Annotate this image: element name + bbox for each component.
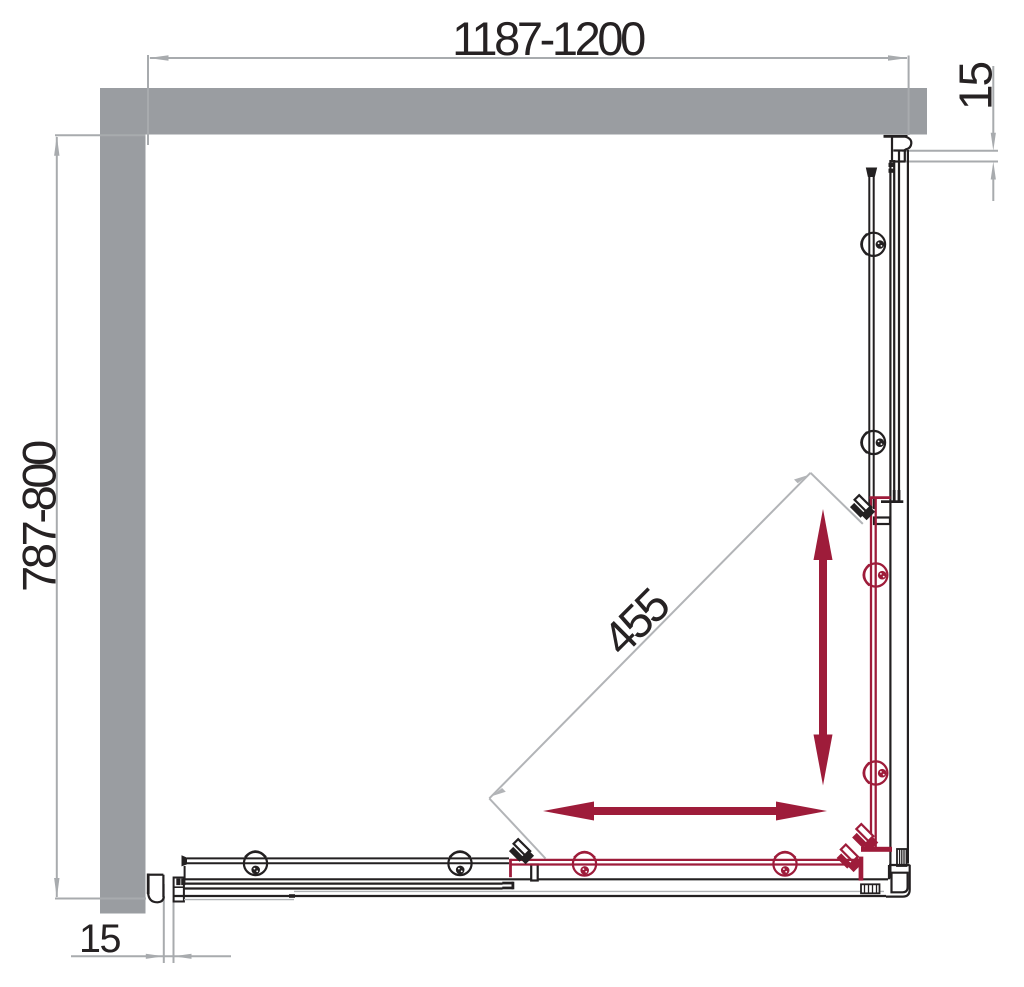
- svg-text:787-800: 787-800: [12, 441, 65, 592]
- svg-text:15: 15: [79, 917, 120, 961]
- svg-text:15: 15: [950, 63, 1002, 111]
- svg-text:1187-1200: 1187-1200: [452, 12, 645, 65]
